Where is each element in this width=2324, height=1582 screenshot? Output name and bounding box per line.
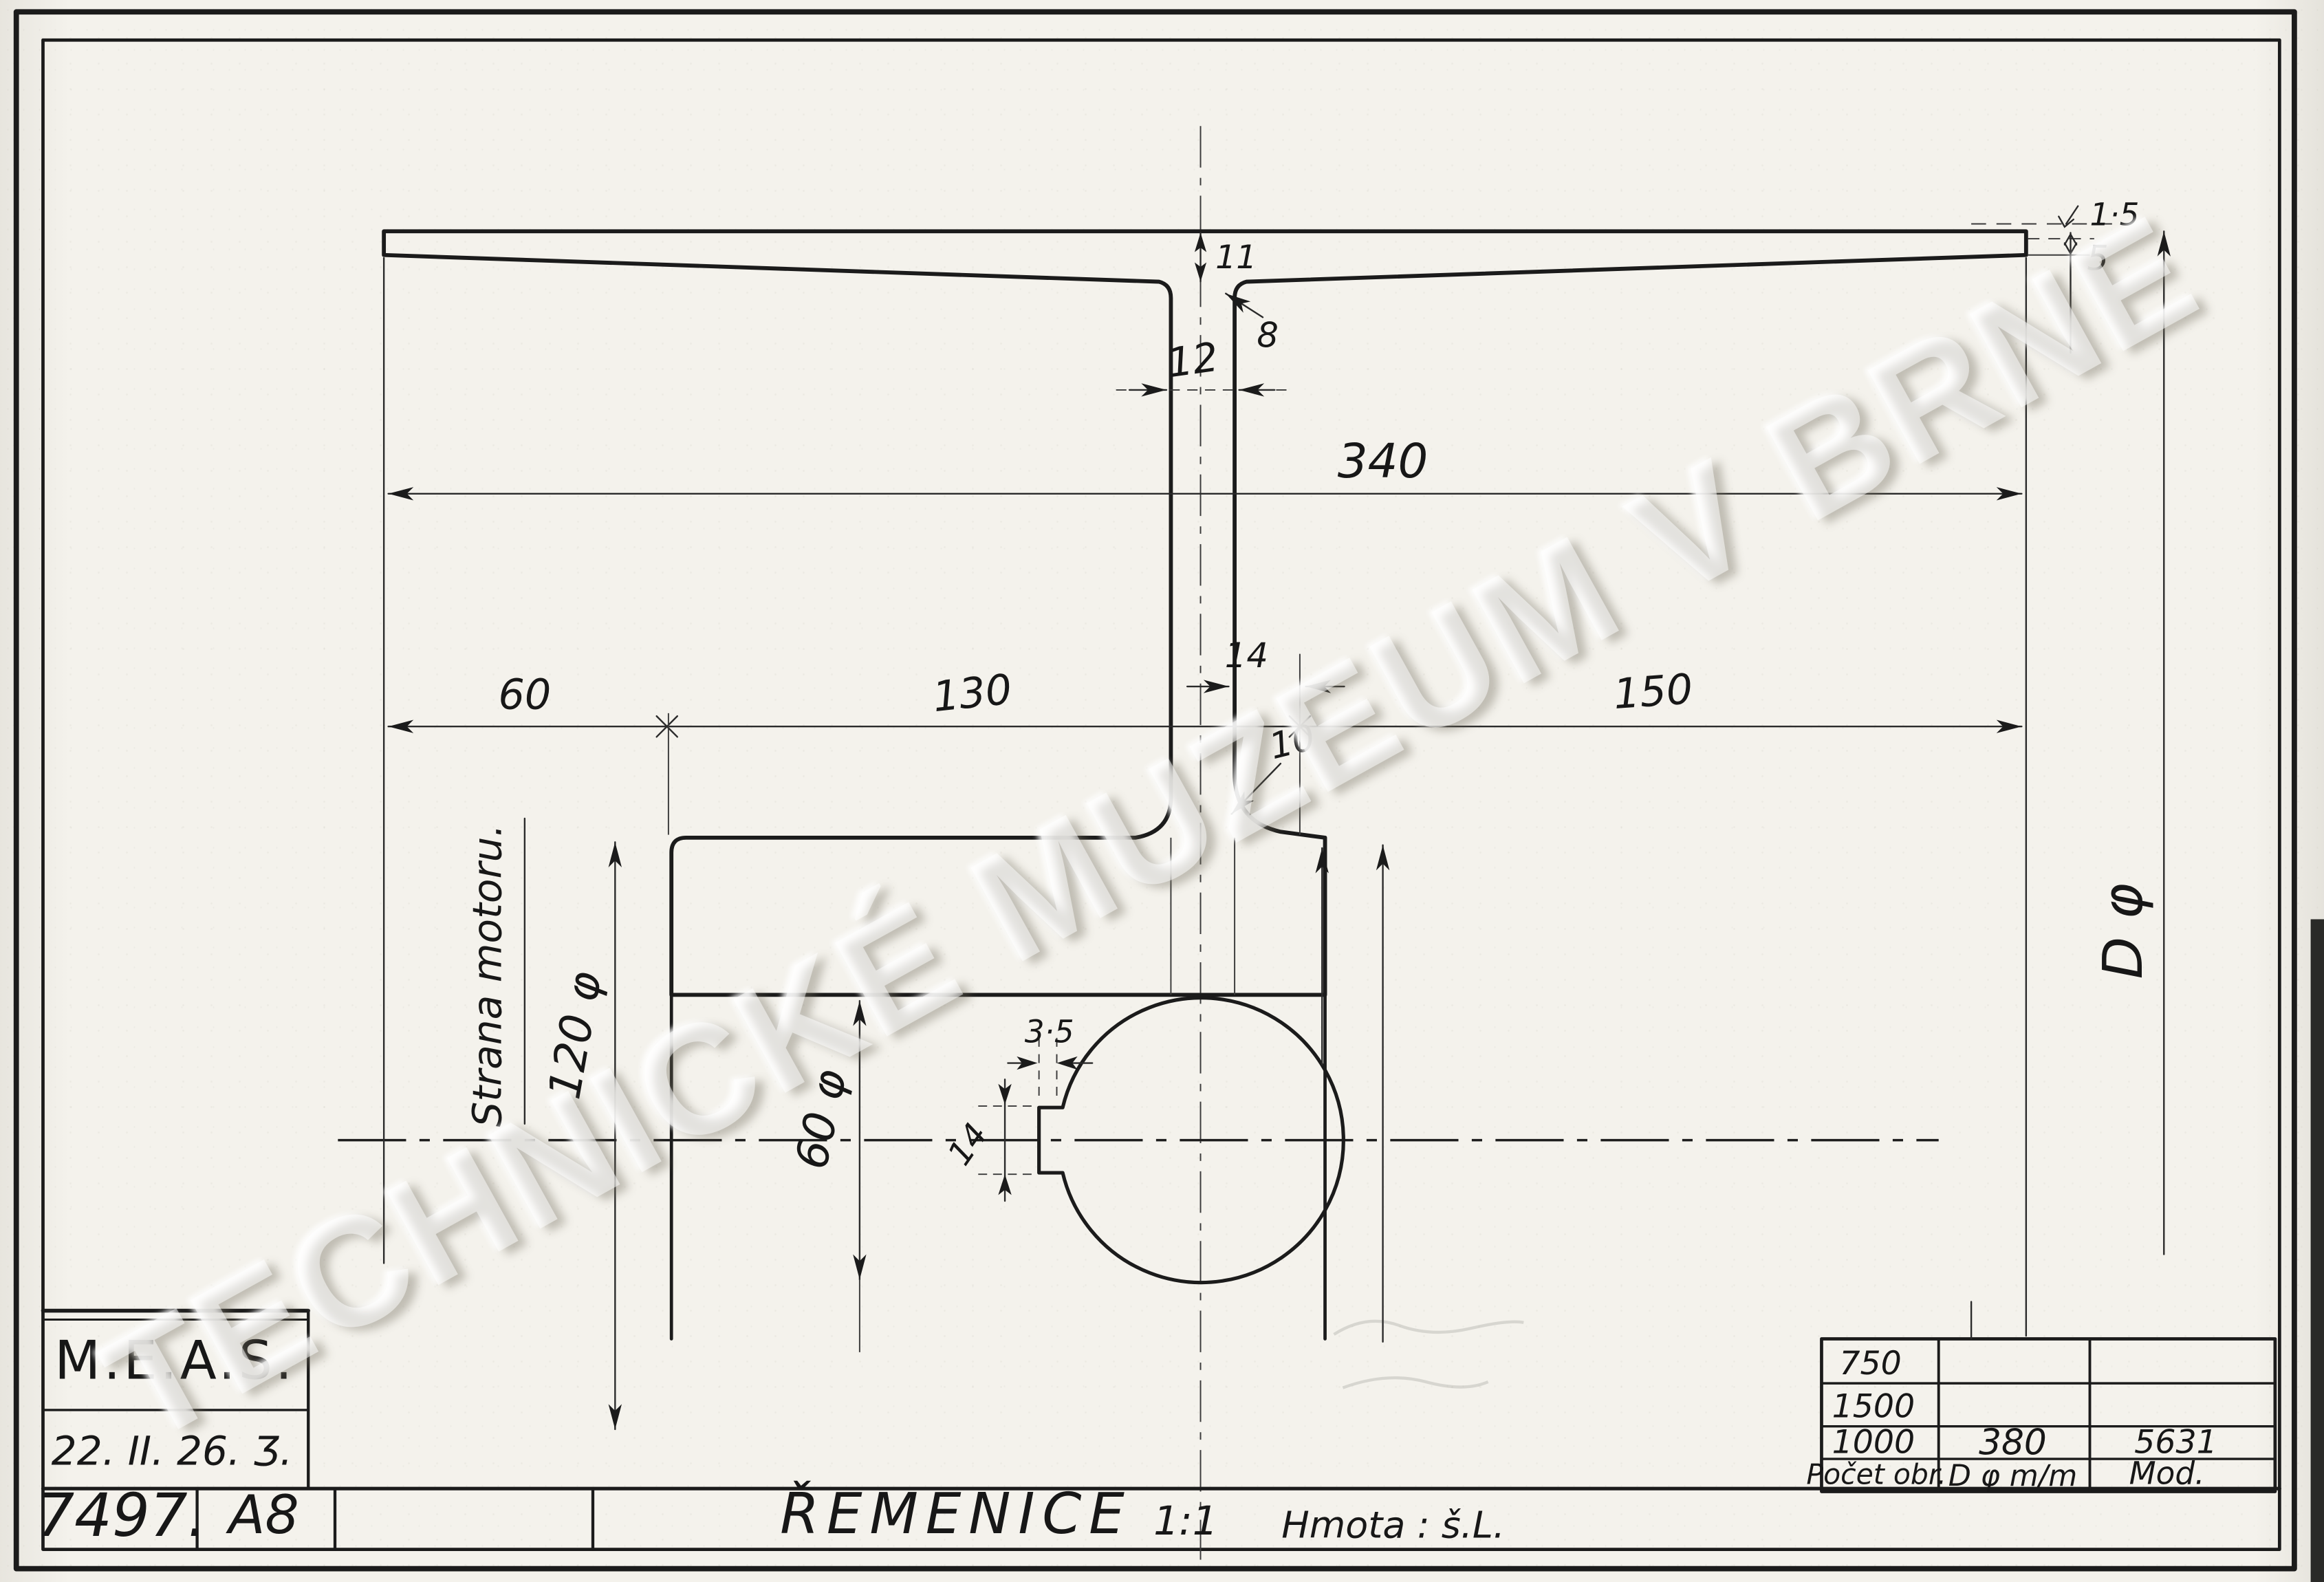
dim-label-60: 60	[498, 671, 551, 719]
dim-crown-detail: 1·5 5	[1971, 197, 2139, 353]
dim-label-3-5: 3·5	[1025, 1013, 1074, 1050]
drawing-scale: 1:1	[1153, 1497, 1218, 1544]
dim-keyway: 3·5 14	[941, 1013, 1093, 1201]
dim-340: 340	[384, 258, 2026, 1336]
dim-label-150: 150	[1612, 665, 1695, 719]
motor-side-label: Strana motoru.	[464, 824, 510, 1127]
dim-label-5: 5	[2087, 238, 2109, 278]
dim-label-120: 120 φ	[539, 968, 611, 1103]
drawing-number: 7497.	[36, 1482, 206, 1550]
pulley-section-drawing: 340 60 130 150 14 12	[0, 0, 2324, 1582]
dim-label-14-key: 14	[941, 1116, 996, 1172]
part-title: ŘEMENICE	[780, 1481, 1132, 1547]
note-motor-side: Strana motoru.	[464, 819, 524, 1127]
title-block: M.E.A.S. 22. II. 26. Ʒ. 7497. A8 ŘEMENIC…	[36, 1311, 2279, 1551]
scan-edge-artifact	[2311, 919, 2324, 1582]
table-cell-1000: 1000	[1832, 1423, 1915, 1461]
table-header-pocet-obr: Počet obr.	[1806, 1458, 1946, 1491]
dim-label-10: 10	[1266, 717, 1319, 768]
dim-label-14-web: 14	[1225, 636, 1268, 675]
dim-11-rim: 11	[1195, 232, 1257, 281]
material-note: Hmota : š.L.	[1281, 1503, 1505, 1546]
hub-reference-arrows	[1322, 845, 1382, 1342]
dim-120-dia: 120 φ	[539, 842, 615, 1429]
sheet-code: A8	[225, 1484, 298, 1546]
dim-label-340: 340	[1338, 434, 1429, 489]
table-header-d-dia: D φ m/m	[1948, 1459, 2077, 1493]
dim-label-D: D φ	[2091, 883, 2155, 979]
dim-label-11: 11	[1215, 239, 1257, 277]
table-cell-750: 750	[1839, 1345, 1901, 1383]
table-cell-380: 380	[1979, 1422, 2047, 1464]
dim-D-dia: D φ	[2091, 231, 2164, 1254]
dim-10-fillet: 10	[1232, 717, 1319, 814]
pulley-section-outline	[384, 231, 2026, 1339]
centerlines	[338, 126, 1938, 1559]
table-header-mod: Mod.	[2129, 1455, 2205, 1492]
revision-table: 750 1500 1000 380 5631 Počet obr. D φ m/…	[1806, 1302, 2274, 1493]
faint-pencil-marks	[1334, 1321, 1523, 1388]
dim-label-130: 130	[931, 665, 1014, 722]
drawing-sheet: 340 60 130 150 14 12	[0, 0, 2324, 1582]
dim-chain-60-130-150: 60 130 150	[389, 654, 2022, 835]
dim-label-8: 8	[1257, 315, 1279, 355]
company-name: M.E.A.S.	[54, 1330, 295, 1392]
dim-label-1-5: 1·5	[2090, 197, 2140, 233]
drawing-date: 22. II. 26. Ʒ.	[52, 1428, 293, 1475]
dim-14-web: 14	[1187, 636, 1344, 686]
table-cell-1500: 1500	[1832, 1388, 1915, 1426]
dim-label-12: 12	[1164, 334, 1221, 387]
dim-60-dia: 60 φ	[786, 1001, 860, 1352]
dim-label-60-dia: 60 φ	[786, 1065, 858, 1173]
